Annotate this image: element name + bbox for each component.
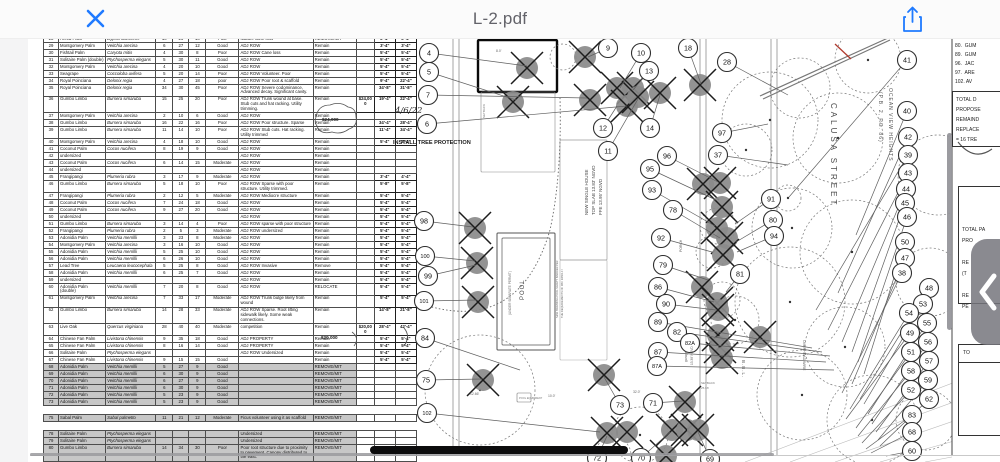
table-row: 58Adonidia PalmVeitchia merrillii6257Goo…	[44, 270, 417, 277]
table-row: 38Gumbo LimboBursera simaruba162216PoorA…	[44, 120, 417, 127]
table-row: 45FrangipangiPlumeria rubra3179ModerateA…	[44, 174, 417, 181]
chevron-left-icon	[973, 264, 1000, 320]
table-row: 60Adonidia Palm (double)Veitchia merrill…	[44, 284, 417, 296]
table-row: 30Fishtail PalmCaryota mitis4308PoorADJ …	[44, 50, 417, 57]
table-row: 37Montgomery PalmVeitchia arecina2106Goo…	[44, 113, 417, 120]
table-row: 32Montgomery PalmVeitchia arecina42010Go…	[44, 64, 417, 71]
vertical-scrollbar-thumb[interactable]	[947, 133, 952, 330]
tree-table-body: 28Areca PalmDypsis lutescens102610PoorMa…	[44, 38, 417, 461]
table-row: 39Gumbo LimboBursera simaruba111410PoorA…	[44, 127, 417, 139]
table-row: 61Montgomery PalmVeitchia arecina73317Mo…	[44, 295, 417, 307]
table-row: 73Adonidia PalmVeitchia merrillii5239Goo…	[44, 399, 417, 406]
viewer-toolbar: L-2.pdf	[0, 0, 1000, 39]
table-row: 57Lead TreeLeucaena leucocephala5258Good…	[44, 263, 417, 270]
table-row: 31Solitaire Palm (double)Ptychosperma el…	[44, 57, 417, 64]
table-row: 71Adonidia PalmVeitchia merrillii6309Goo…	[44, 385, 417, 392]
share-button[interactable]	[900, 5, 926, 33]
table-row: 56Adonidia PalmVeitchia merrillii62610Go…	[44, 256, 417, 263]
table-row: 35Royal PoincianaDelonix regia343045Poor…	[44, 85, 417, 97]
previous-page-button[interactable]	[971, 239, 1000, 345]
table-row: 67Chinese Fan PalmLivistona chinensis915…	[44, 357, 417, 364]
table-row: 47FrangipangiPlumeria rubra2125ModerateA…	[44, 193, 417, 200]
table-row: 64Chinese Fan PalmLivistona chinensis935…	[44, 336, 417, 343]
document-title: L-2.pdf	[0, 9, 1000, 29]
table-row: 42undersizedADJ ROWRemain	[44, 153, 417, 160]
table-row: 50undersizedADJ ROWRemain5'-4"5'-4"	[44, 214, 417, 221]
table-row: 70Adonidia PalmVeitchia merrillii6279Goo…	[44, 378, 417, 385]
table-row: 29Montgomery PalmVeitchia arecina62712Go…	[44, 43, 417, 50]
table-row: 48Coconut PalmCocos nucifera72418GoodADJ…	[44, 200, 417, 207]
table-row: 51Gumbo LimboBursera simaruba3144PoorADJ…	[44, 221, 417, 228]
table-row: 49Coconut PalmCocos nucifera92720GoodADJ…	[44, 207, 417, 214]
side-panel-summary-box: TOTAL D PROPOSE REMAIND REPLACE = 16 TRE	[952, 91, 1000, 147]
share-icon	[900, 5, 926, 33]
table-row: 52FrangipangiPlumeria rubra253ModerateAD…	[44, 228, 417, 235]
table-row: 78Solitaire PalmPtychosperma elegansUnde…	[44, 431, 417, 438]
table-row: 43Coconut PalmCocos nucifera61415Moderat…	[44, 160, 417, 167]
side-panel-box-3: TO	[958, 344, 1000, 436]
table-row: 33SeagrapeCoccoloba uvifera52014PoorADJ …	[44, 71, 417, 78]
table-row: 65Chinese Fan PalmLivistona chinensis816…	[44, 343, 417, 350]
table-row: 63Live OakQuercus virginiana284040Modera…	[44, 324, 417, 336]
table-row: 46Gumbo LimboBursera simaruba51810PoorAD…	[44, 181, 417, 193]
table-row: 66Solitaire PalmPtychosperma elegansADJ …	[44, 350, 417, 357]
side-panel-tree-list: 80. GUM 89. GUM 96. JAC 97. ARE 102. AV	[955, 42, 976, 87]
table-row: 68Adonidia PalmVeitchia merrillii5279Goo…	[44, 364, 417, 371]
table-row: 53Adonidia PalmVeitchia merrillii3238Mod…	[44, 235, 417, 242]
table-gap-row	[44, 422, 417, 431]
table-row: 34Royal PoincianaDelonix regia42718poorA…	[44, 78, 417, 85]
tree-table: 28Areca PalmDypsis lutescens102610PoorMa…	[43, 38, 419, 462]
table-row: 55Adonidia PalmVeitchia merrillii52510Go…	[44, 249, 417, 256]
table-row: 36Gumbo LimboBursera simaruba152520PoorA…	[44, 96, 417, 113]
table-gap-row	[44, 406, 417, 415]
table-row: 40Montgomery PalmVeitchia arecina41810Go…	[44, 139, 417, 146]
home-indicator	[370, 446, 628, 454]
table-row: 44undersizedADJ ROWRemain	[44, 167, 417, 174]
table-row: 69Adonidia PalmVeitchia merrillii6309Goo…	[44, 371, 417, 378]
table-row: 62Gumbo LimboBursera simaruba142833Moder…	[44, 307, 417, 324]
table-row: 72Adonidia PalmVeitchia merrillii5239Goo…	[44, 392, 417, 399]
table-row: 54Montgomery PalmVeitchia arecina31610Go…	[44, 242, 417, 249]
table-row: 41Coconut PalmCocos nucifera8199GoodADJ …	[44, 146, 417, 153]
table-row: 59undersizedADJ ROWRemain5'-4"5'-4"	[44, 277, 417, 284]
table-row: 79Solitaire PalmPtychosperma elegansUnde…	[44, 438, 417, 445]
side-panel-box-3-header: TO	[959, 345, 1000, 363]
table-row: 75Sabal PalmSabal palmetto112112Moderate…	[44, 415, 417, 422]
